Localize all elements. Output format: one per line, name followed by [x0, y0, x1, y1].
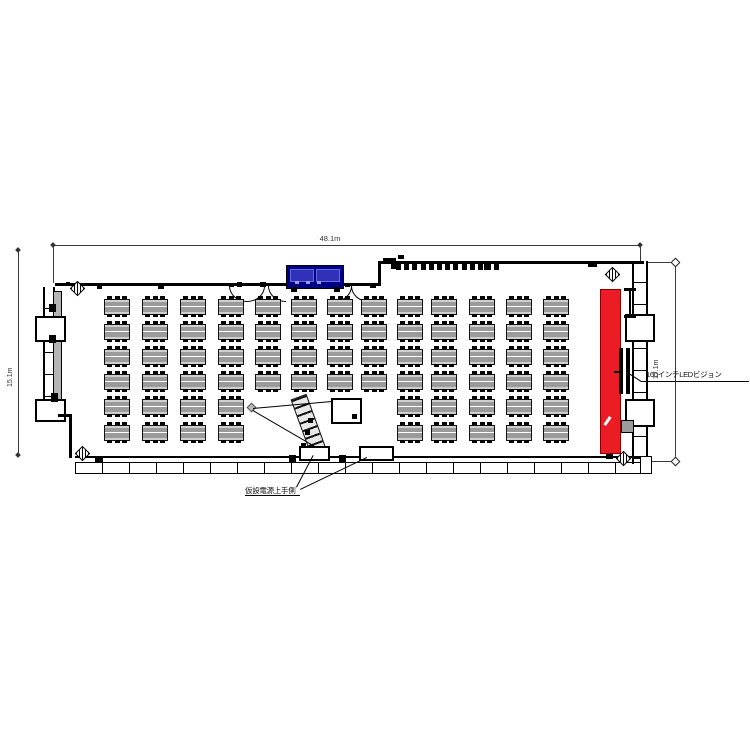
chair-mark — [434, 321, 439, 324]
stage-control-desk — [286, 265, 344, 289]
wall-step-fitting — [398, 255, 404, 259]
chair-mark — [554, 371, 559, 374]
banquet-table — [469, 324, 495, 340]
chair-mark — [509, 321, 514, 324]
banquet-table — [431, 299, 457, 315]
chair-mark — [273, 296, 278, 299]
chair-mark — [517, 296, 522, 299]
chair-mark — [400, 414, 405, 417]
chair-mark — [561, 396, 566, 399]
chair-mark — [554, 396, 559, 399]
chair-mark — [229, 414, 234, 417]
banquet-table — [291, 349, 317, 365]
chair-mark — [345, 371, 350, 374]
chair-mark — [434, 396, 439, 399]
chair-mark — [221, 321, 226, 324]
chair-mark — [191, 314, 196, 317]
right-dimension-line — [675, 262, 676, 462]
chair-mark — [236, 339, 241, 342]
corner-hatch-symbol — [605, 267, 621, 283]
chair-mark — [379, 339, 384, 342]
chair-mark — [561, 422, 566, 425]
chair-mark — [191, 364, 196, 367]
banquet-table — [469, 299, 495, 315]
chair-mark — [524, 440, 529, 443]
chair-mark — [160, 346, 165, 349]
chair-mark — [517, 440, 522, 443]
chair-mark — [115, 339, 120, 342]
banquet-table — [543, 374, 569, 390]
chair-mark — [273, 346, 278, 349]
chair-mark — [415, 346, 420, 349]
chair-mark — [509, 314, 514, 317]
chair-mark — [442, 346, 447, 349]
chair-mark — [107, 440, 112, 443]
bottom-right-corner — [640, 456, 652, 474]
chair-mark — [517, 414, 522, 417]
wall-chair-mark — [429, 264, 434, 270]
banquet-table — [506, 299, 532, 315]
chair-mark — [554, 364, 559, 367]
chair-mark — [509, 339, 514, 342]
chair-mark — [408, 314, 413, 317]
chair-mark — [372, 364, 377, 367]
door-leaf-mark — [237, 282, 242, 287]
wall-chair-mark — [486, 264, 491, 270]
chair-mark — [160, 339, 165, 342]
chair-mark — [379, 346, 384, 349]
chair-mark — [400, 339, 405, 342]
banquet-table — [431, 324, 457, 340]
chair-mark — [524, 414, 529, 417]
chair-mark — [122, 314, 127, 317]
chair-mark — [415, 389, 420, 392]
chair-mark — [442, 339, 447, 342]
chair-mark — [372, 389, 377, 392]
chair-mark — [449, 389, 454, 392]
chair-mark — [517, 339, 522, 342]
chair-mark — [309, 346, 314, 349]
chair-mark — [294, 346, 299, 349]
chair-mark — [122, 364, 127, 367]
chair-mark — [191, 440, 196, 443]
chair-mark — [434, 371, 439, 374]
chair-mark — [442, 440, 447, 443]
banquet-table — [397, 399, 423, 415]
chair-mark — [258, 364, 263, 367]
chair-mark — [107, 339, 112, 342]
chair-mark — [379, 371, 384, 374]
chair-mark — [554, 314, 559, 317]
floor-power-box — [299, 446, 330, 461]
chair-mark — [183, 414, 188, 417]
chair-mark — [338, 389, 343, 392]
banquet-table — [397, 299, 423, 315]
chair-mark — [198, 389, 203, 392]
chair-mark — [236, 321, 241, 324]
chair-mark — [115, 371, 120, 374]
banquet-table — [218, 299, 244, 315]
banquet-table — [543, 324, 569, 340]
banquet-table — [291, 299, 317, 315]
chair-mark — [198, 314, 203, 317]
chair-mark — [554, 339, 559, 342]
chair-mark — [442, 389, 447, 392]
chair-mark — [480, 339, 485, 342]
banquet-table — [361, 299, 387, 315]
chair-mark — [330, 371, 335, 374]
chair-mark — [294, 371, 299, 374]
banquet-table — [506, 425, 532, 441]
chair-mark — [546, 396, 551, 399]
chair-mark — [115, 296, 120, 299]
chair-mark — [400, 440, 405, 443]
chair-mark — [153, 396, 158, 399]
chair-mark — [266, 321, 271, 324]
chair-mark — [372, 339, 377, 342]
chair-mark — [408, 296, 413, 299]
chair-mark — [258, 339, 263, 342]
chair-mark — [309, 371, 314, 374]
chair-mark — [364, 314, 369, 317]
chair-mark — [236, 414, 241, 417]
chair-mark — [415, 371, 420, 374]
chair-mark — [160, 364, 165, 367]
chair-mark — [191, 321, 196, 324]
camera-platform — [331, 398, 362, 424]
chair-mark — [122, 396, 127, 399]
chair-mark — [561, 389, 566, 392]
chair-mark — [273, 339, 278, 342]
chair-mark — [472, 314, 477, 317]
banquet-table — [218, 324, 244, 340]
chair-mark — [480, 414, 485, 417]
chair-mark — [449, 396, 454, 399]
chair-mark — [273, 321, 278, 324]
chair-mark — [472, 414, 477, 417]
chair-mark — [338, 296, 343, 299]
chair-mark — [509, 396, 514, 399]
chair-mark — [472, 321, 477, 324]
equipment-box — [621, 420, 634, 433]
chair-mark — [546, 414, 551, 417]
chair-mark — [198, 414, 203, 417]
chair-mark — [524, 389, 529, 392]
chair-mark — [160, 321, 165, 324]
chair-mark — [236, 364, 241, 367]
banquet-table — [104, 374, 130, 390]
banquet-table — [104, 324, 130, 340]
chair-mark — [273, 364, 278, 367]
chair-mark — [107, 422, 112, 425]
chair-mark — [400, 314, 405, 317]
chair-mark — [309, 321, 314, 324]
chair-mark — [472, 339, 477, 342]
chair-mark — [221, 339, 226, 342]
chair-mark — [153, 371, 158, 374]
desk-mark — [317, 281, 321, 284]
chair-mark — [415, 296, 420, 299]
chair-mark — [338, 314, 343, 317]
dim-marker — [50, 242, 56, 248]
chair-mark — [472, 389, 477, 392]
chair-mark — [115, 440, 120, 443]
chair-mark — [309, 314, 314, 317]
chair-mark — [415, 314, 420, 317]
chair-mark — [115, 314, 120, 317]
wall-chair-mark — [445, 264, 450, 270]
chair-mark — [408, 389, 413, 392]
chair-mark — [546, 364, 551, 367]
ramp-support-mark — [305, 430, 310, 435]
chair-mark — [345, 296, 350, 299]
chair-mark — [345, 389, 350, 392]
chair-mark — [415, 422, 420, 425]
chair-mark — [546, 321, 551, 324]
chair-mark — [442, 414, 447, 417]
chair-mark — [191, 422, 196, 425]
chair-mark — [294, 364, 299, 367]
chair-mark — [517, 364, 522, 367]
chair-mark — [266, 296, 271, 299]
chair-mark — [364, 346, 369, 349]
chair-mark — [236, 440, 241, 443]
chair-mark — [122, 346, 127, 349]
chair-mark — [487, 396, 492, 399]
chair-mark — [153, 314, 158, 317]
chair-mark — [183, 364, 188, 367]
chair-mark — [302, 296, 307, 299]
chair-mark — [236, 296, 241, 299]
chair-mark — [160, 389, 165, 392]
chair-mark — [338, 364, 343, 367]
chair-mark — [480, 296, 485, 299]
chair-mark — [442, 396, 447, 399]
banquet-table — [431, 425, 457, 441]
chair-mark — [160, 314, 165, 317]
chair-mark — [294, 296, 299, 299]
chair-mark — [309, 296, 314, 299]
chair-mark — [449, 314, 454, 317]
banquet-table — [104, 349, 130, 365]
chair-mark — [160, 414, 165, 417]
chair-mark — [524, 314, 529, 317]
door-leaf-mark — [260, 282, 266, 287]
chair-mark — [408, 364, 413, 367]
dim-marker — [671, 258, 681, 268]
chair-mark — [400, 296, 405, 299]
wall-chair-mark — [462, 264, 467, 270]
ramp-support-mark — [308, 418, 313, 423]
chair-mark — [153, 389, 158, 392]
chair-mark — [107, 371, 112, 374]
chair-mark — [472, 396, 477, 399]
banquet-table — [291, 324, 317, 340]
banquet-table — [327, 349, 353, 365]
chair-mark — [487, 422, 492, 425]
banquet-table — [104, 399, 130, 415]
chair-mark — [191, 414, 196, 417]
chair-mark — [487, 364, 492, 367]
chair-mark — [509, 414, 514, 417]
banquet-table — [255, 299, 281, 315]
chair-mark — [524, 422, 529, 425]
banquet-table — [506, 399, 532, 415]
chair-mark — [160, 422, 165, 425]
chair-mark — [480, 422, 485, 425]
wall-step-fitting — [383, 258, 396, 263]
chair-mark — [415, 364, 420, 367]
chair-mark — [191, 346, 196, 349]
chair-mark — [229, 346, 234, 349]
chair-mark — [517, 422, 522, 425]
chair-mark — [258, 321, 263, 324]
chair-mark — [153, 339, 158, 342]
chair-mark — [302, 371, 307, 374]
chair-mark — [561, 364, 566, 367]
chair-mark — [229, 440, 234, 443]
chair-mark — [122, 389, 127, 392]
chair-mark — [183, 346, 188, 349]
chair-mark — [480, 396, 485, 399]
chair-mark — [266, 314, 271, 317]
chair-mark — [229, 389, 234, 392]
chair-mark — [554, 389, 559, 392]
chair-mark — [415, 339, 420, 342]
banquet-table — [255, 374, 281, 390]
chair-mark — [183, 396, 188, 399]
chair-mark — [221, 296, 226, 299]
chair-mark — [415, 321, 420, 324]
chair-mark — [266, 346, 271, 349]
chair-mark — [330, 339, 335, 342]
bottom-note-underline — [245, 495, 300, 496]
chair-mark — [442, 364, 447, 367]
banquet-table — [142, 349, 168, 365]
chair-mark — [330, 389, 335, 392]
chair-mark — [191, 389, 196, 392]
chair-mark — [524, 296, 529, 299]
chair-mark — [509, 422, 514, 425]
chair-mark — [236, 396, 241, 399]
chair-mark — [160, 396, 165, 399]
banquet-table — [218, 374, 244, 390]
chair-mark — [153, 296, 158, 299]
chair-mark — [229, 321, 234, 324]
chair-mark — [408, 371, 413, 374]
chair-mark — [561, 321, 566, 324]
chair-mark — [487, 371, 492, 374]
banquet-table — [327, 324, 353, 340]
chair-mark — [198, 321, 203, 324]
floor-box-mark — [339, 455, 346, 462]
banquet-table — [397, 349, 423, 365]
chair-mark — [266, 364, 271, 367]
banquet-table — [142, 324, 168, 340]
chair-mark — [379, 321, 384, 324]
chair-mark — [364, 339, 369, 342]
chair-mark — [561, 314, 566, 317]
banquet-table — [255, 349, 281, 365]
chair-mark — [554, 440, 559, 443]
chair-mark — [258, 314, 263, 317]
desk-mark — [306, 281, 310, 284]
banquet-table — [543, 299, 569, 315]
banquet-table — [506, 324, 532, 340]
chair-mark — [198, 440, 203, 443]
chair-mark — [221, 314, 226, 317]
chair-mark — [145, 296, 150, 299]
chair-mark — [487, 346, 492, 349]
chair-mark — [221, 396, 226, 399]
wall-chair-mark — [494, 264, 499, 270]
chair-mark — [122, 371, 127, 374]
chair-mark — [487, 389, 492, 392]
chair-mark — [509, 296, 514, 299]
led-label-underline — [641, 381, 749, 382]
chair-mark — [345, 346, 350, 349]
top-wall-right-segment — [378, 261, 644, 264]
chair-mark — [400, 364, 405, 367]
chair-mark — [372, 314, 377, 317]
chair-mark — [400, 371, 405, 374]
banquet-table — [543, 425, 569, 441]
chair-mark — [554, 414, 559, 417]
chair-mark — [415, 396, 420, 399]
wall-outlet-mark — [66, 282, 70, 286]
chair-mark — [449, 339, 454, 342]
chair-mark — [309, 339, 314, 342]
chair-mark — [561, 414, 566, 417]
chair-mark — [408, 414, 413, 417]
chair-mark — [153, 422, 158, 425]
chair-mark — [400, 321, 405, 324]
chair-mark — [372, 321, 377, 324]
chair-mark — [364, 364, 369, 367]
chair-mark — [400, 346, 405, 349]
chair-mark — [546, 346, 551, 349]
chair-mark — [183, 321, 188, 324]
chair-mark — [309, 364, 314, 367]
chair-mark — [554, 296, 559, 299]
chair-mark — [379, 364, 384, 367]
chair-mark — [160, 440, 165, 443]
bottom-left-wall — [69, 416, 72, 458]
chair-mark — [145, 314, 150, 317]
chair-mark — [546, 422, 551, 425]
chair-mark — [198, 339, 203, 342]
chair-mark — [554, 346, 559, 349]
chair-mark — [509, 371, 514, 374]
wall-chair-mark — [470, 264, 475, 270]
desk-leg-mark — [291, 287, 297, 292]
chair-mark — [221, 440, 226, 443]
banquet-table — [180, 399, 206, 415]
chair-mark — [229, 339, 234, 342]
chair-mark — [229, 314, 234, 317]
chair-mark — [372, 346, 377, 349]
chair-mark — [364, 321, 369, 324]
chair-mark — [122, 321, 127, 324]
chair-mark — [294, 339, 299, 342]
chair-mark — [434, 422, 439, 425]
top-width-dimension-label: 48.1m — [310, 234, 350, 243]
chair-mark — [294, 314, 299, 317]
chair-mark — [229, 396, 234, 399]
chair-mark — [449, 364, 454, 367]
chair-mark — [338, 321, 343, 324]
chair-mark — [517, 396, 522, 399]
